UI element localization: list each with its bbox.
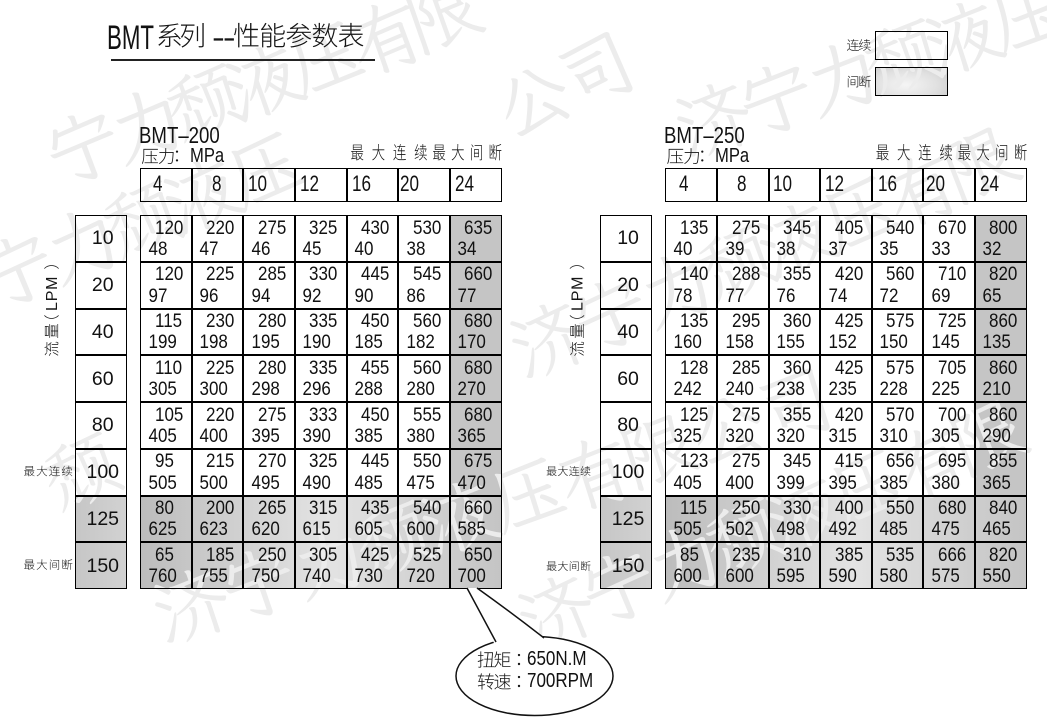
svg-text:LPM: LPM [570, 276, 587, 311]
svg-text:LPM: LPM [44, 276, 61, 311]
